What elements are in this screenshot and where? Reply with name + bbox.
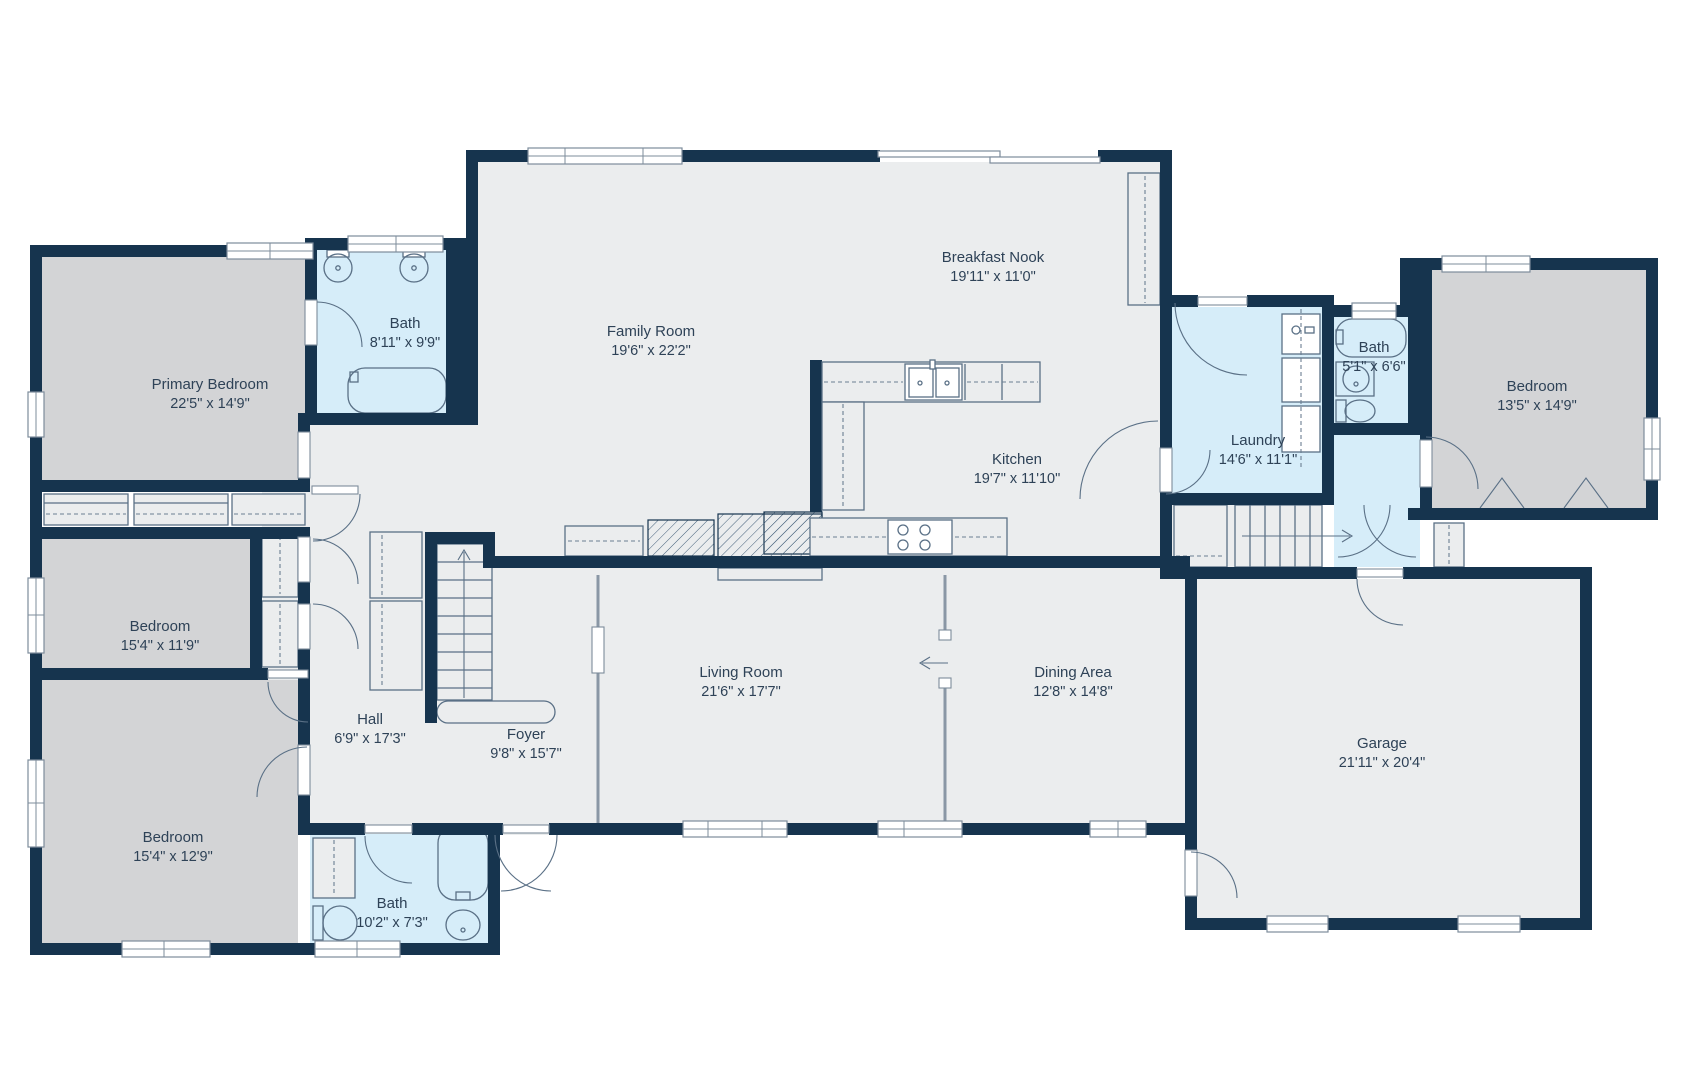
room-label-family-room: Family Room — [607, 323, 695, 340]
room-dims-bedroom-right: 13'5" x 14'9" — [1497, 398, 1577, 414]
hall-east-closets — [370, 532, 422, 690]
room-dims-bedroom-mid-left: 15'4" x 11'9" — [121, 638, 199, 654]
room-label-bedroom-bottom-left: Bedroom — [143, 829, 204, 846]
room-dims-family-room: 19'6" x 22'2" — [611, 343, 691, 359]
room-dims-kitchen: 19'7" x 11'10" — [974, 471, 1061, 487]
floor-plan: Primary Bedroom22'5" x 14'9"Bath8'11" x … — [0, 0, 1693, 1080]
room-dims-bath-lower: 10'2" x 7'3" — [356, 915, 427, 931]
room-dims-bath-hall-upper: 5'1" x 6'6" — [1342, 359, 1405, 375]
room-label-primary-bedroom: Primary Bedroom — [152, 376, 269, 393]
room-dims-garage: 21'11" x 20'4" — [1339, 755, 1426, 771]
room-label-hall: Hall — [357, 711, 383, 728]
room-dims-living-room: 21'6" x 17'7" — [701, 684, 781, 700]
room-bedroom-bottom-left — [42, 680, 298, 943]
vestibule-closet — [1434, 523, 1464, 567]
room-label-kitchen: Kitchen — [992, 451, 1042, 468]
room-dims-breakfast-nook: 19'11" x 11'0" — [950, 269, 1035, 285]
floor-plan-svg: Primary Bedroom22'5" x 14'9"Bath8'11" x … — [0, 0, 1693, 1080]
room-dims-hall: 6'9" x 17'3" — [334, 731, 405, 747]
room-dims-bedroom-bottom-left: 15'4" x 12'9" — [133, 849, 213, 865]
room-dims-dining-area: 12'8" x 14'8" — [1033, 684, 1113, 700]
room-label-dining-area: Dining Area — [1034, 664, 1112, 681]
room-label-garage: Garage — [1357, 735, 1407, 752]
room-label-living-room: Living Room — [699, 664, 782, 681]
room-dims-laundry: 14'6" x 11'1" — [1219, 452, 1297, 468]
room-label-bath-primary: Bath — [390, 315, 421, 332]
room-label-bath-lower: Bath — [377, 895, 408, 912]
laundry-appliances — [1282, 309, 1320, 470]
closet-row — [44, 494, 305, 525]
basement-stairs — [1174, 505, 1352, 567]
kitchen-counter-stove — [810, 518, 1007, 556]
room-label-bath-hall-upper: Bath — [1359, 339, 1390, 356]
room-dims-foyer: 9'8" x 15'7" — [490, 746, 561, 762]
room-label-breakfast-nook: Breakfast Nook — [942, 249, 1045, 266]
nook-cabinets — [1128, 173, 1160, 305]
room-label-foyer: Foyer — [507, 726, 545, 743]
room-label-bedroom-right: Bedroom — [1507, 378, 1568, 395]
room-label-laundry: Laundry — [1231, 432, 1286, 449]
room-label-bedroom-mid-left: Bedroom — [130, 618, 191, 635]
kitchen-closet — [565, 526, 643, 556]
vestibule-floor — [1334, 435, 1420, 567]
room-dims-primary-bedroom: 22'5" x 14'9" — [170, 396, 250, 412]
room-dims-bath-primary: 8'11" x 9'9" — [370, 335, 440, 351]
